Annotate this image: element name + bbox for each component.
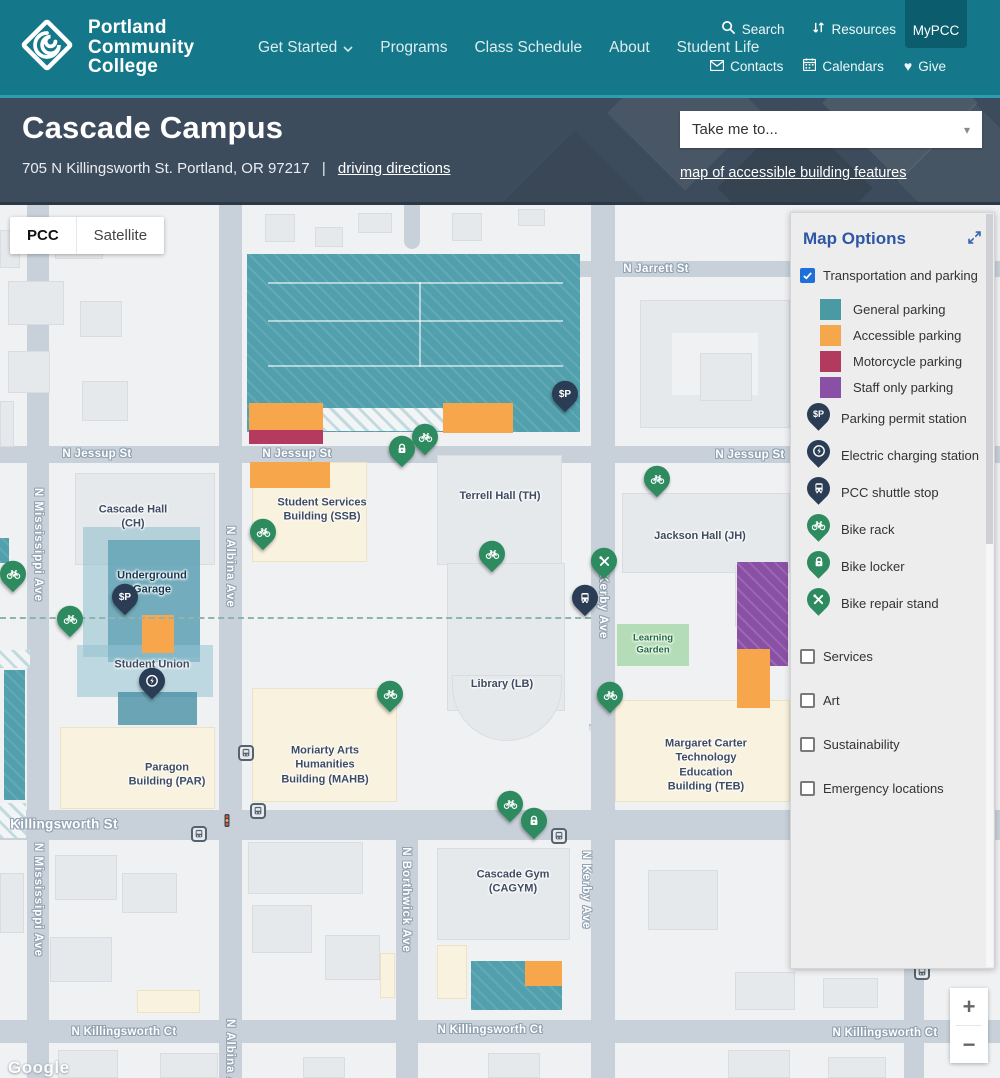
address-text: 705 N Killingsworth St. Portland, OR 972…	[22, 160, 310, 177]
pin-parking-permit-station[interactable]: $P	[550, 381, 580, 421]
utility-search[interactable]: Search	[721, 20, 785, 38]
street-stub	[404, 205, 420, 249]
checkbox-transportation-and-parking[interactable]	[800, 268, 815, 283]
utility-nav-bottom: ContactsCalendars♥Give	[710, 58, 946, 74]
building	[452, 213, 482, 241]
parking-accessible-3	[250, 462, 330, 488]
building	[728, 1050, 790, 1078]
layer-label: Art	[823, 693, 840, 708]
layer-row-sustainability: Sustainability	[800, 737, 986, 752]
utility-give[interactable]: ♥Give	[904, 58, 946, 74]
building	[8, 351, 50, 393]
building-label-cascade-gym: Cascade Gym (CAGYM)	[477, 868, 550, 897]
building	[325, 935, 380, 980]
street-n-kerby-ave	[591, 205, 615, 1078]
parking-accessible-2	[443, 403, 513, 433]
panel-header: Map Options	[791, 213, 994, 253]
campus-header: Cascade Campus 705 N Killingsworth St. P…	[0, 95, 1000, 205]
chevron-down-icon	[343, 39, 353, 57]
building-label-paragon: Paragon Building (PAR)	[129, 761, 206, 790]
checkbox-sustainability[interactable]	[800, 737, 815, 752]
parking-accessible-5	[525, 961, 562, 986]
panel-title: Map Options	[803, 229, 906, 248]
legend-row-bike-repair-stand: Bike repair stand	[805, 586, 994, 620]
utility-resources[interactable]: Resources	[812, 20, 896, 38]
legend-row-accessible-parking: Accessible parking	[820, 324, 994, 346]
building-label-teb: Margaret Carter Technology Education Bui…	[665, 736, 747, 793]
campus-address: 705 N Killingsworth St. Portland, OR 972…	[22, 160, 450, 177]
utility-calendars[interactable]: Calendars	[803, 58, 884, 74]
pin-bike-rack[interactable]	[595, 682, 625, 722]
building	[0, 401, 14, 447]
legend-pin-pcc-shuttle-stop	[805, 476, 832, 509]
nav-class-schedule[interactable]: Class Schedule	[474, 39, 582, 57]
google-attribution: Google	[8, 1058, 70, 1078]
checkbox-art[interactable]	[800, 693, 815, 708]
pcc-diamond-logo-icon	[16, 14, 78, 81]
map-type-satellite-button[interactable]: Satellite	[76, 217, 164, 254]
street-label: N Mississippi Ave	[32, 488, 44, 602]
select-value: Take me to...	[692, 121, 778, 138]
building-label-jackson-hall: Jackson Hall (JH)	[654, 529, 746, 543]
parking-accessible-6	[142, 615, 174, 653]
bus-stop-icon	[191, 826, 207, 842]
scrollbar-thumb[interactable]	[986, 214, 993, 544]
building	[518, 209, 545, 226]
legend-label: Parking permit station	[841, 411, 967, 426]
legend-row-bike-locker: Bike locker	[805, 549, 994, 583]
pin-bike-rack[interactable]	[248, 519, 278, 559]
street-label: N Jessup St	[715, 449, 784, 461]
building-label-library: Library (LB)	[471, 677, 533, 691]
legend-swatch-staff-only-parking	[820, 377, 841, 398]
building-label-mahb: Moriarty Arts Humanities Building (MAHB)	[281, 744, 368, 787]
panel-sections: Transportation and parkingGeneral parkin…	[791, 268, 994, 796]
street-label: N Albina Ave	[224, 1019, 236, 1078]
building	[252, 905, 312, 953]
lane-line	[268, 282, 563, 284]
layer-row-services: Services	[800, 649, 986, 664]
legend-label: Motorcycle parking	[853, 354, 962, 369]
zoom-out-button[interactable]: −	[950, 1026, 988, 1063]
layer-label: Transportation and parking	[823, 268, 978, 283]
building	[50, 937, 112, 982]
pin-electric-charging-station[interactable]	[137, 668, 167, 708]
legend-label: PCC shuttle stop	[841, 485, 939, 500]
nav-get-started[interactable]: Get Started	[258, 39, 353, 57]
layer-label: Emergency locations	[823, 781, 944, 796]
legend-row-motorcycle-parking: Motorcycle parking	[820, 350, 994, 372]
layer-row-art: Art	[800, 693, 986, 708]
one-way-arrow: ↑	[587, 721, 593, 733]
building	[648, 870, 718, 930]
lane-line	[268, 320, 563, 322]
pin-pcc-shuttle-stop[interactable]	[570, 585, 600, 625]
street-label: N Borthwick Ave	[400, 847, 412, 953]
legend-row-pcc-shuttle-stop: PCC shuttle stop	[805, 475, 994, 509]
legend-row-electric-charging-station: Electric charging station	[805, 438, 994, 472]
pin-bike-rack[interactable]	[375, 681, 405, 721]
zoom-control: + −	[950, 988, 988, 1063]
legend-label: Bike locker	[841, 559, 905, 574]
parking-accessible-4	[737, 649, 770, 708]
legend-pin-bike-rack	[805, 513, 832, 546]
layer-label: Sustainability	[823, 737, 900, 752]
map-type-control: PCC Satellite	[10, 217, 164, 254]
resources-icon	[812, 21, 825, 37]
street-label: N Jessup St	[262, 448, 331, 460]
pin-parking-permit-station[interactable]: $P	[110, 584, 140, 624]
site-header: Portland Community College Get StartedPr…	[0, 0, 1000, 95]
building-label-cascade-hall: Cascade Hall (CH)	[99, 503, 167, 532]
parking-area	[4, 670, 25, 800]
legend-row-parking-permit-station: $PParking permit station	[805, 401, 994, 435]
search-icon	[721, 20, 736, 38]
street-label: N Killingsworth Ct	[832, 1027, 937, 1039]
chevron-down-icon: ▾	[964, 123, 970, 137]
calendar-icon	[803, 58, 816, 74]
traffic-light-icon	[224, 814, 230, 833]
legend-row-staff-only-parking: Staff only parking	[820, 376, 994, 398]
street-label: N Mississippi Ave	[32, 843, 44, 957]
building-label-ssb: Student Services Building (SSB)	[277, 496, 366, 525]
building	[80, 301, 122, 337]
parking-area	[0, 650, 30, 668]
building-label-terrell-hall: Terrell Hall (TH)	[459, 489, 540, 503]
street-label: N Killingsworth Ct	[71, 1026, 176, 1038]
learning-garden-label: Learning Garden	[633, 633, 673, 658]
pcc-logo[interactable]: Portland Community College	[16, 14, 194, 81]
building	[82, 381, 128, 421]
street-label: N Jarrett St	[623, 263, 689, 275]
building	[735, 972, 795, 1010]
nav-programs[interactable]: Programs	[380, 39, 447, 57]
checkbox-emergency-locations[interactable]	[800, 781, 815, 796]
street-label: N Albina Ave	[224, 526, 236, 608]
building	[137, 990, 200, 1013]
building	[0, 873, 24, 933]
street-label: N Jessup St	[62, 448, 131, 460]
nav-about[interactable]: About	[609, 39, 650, 57]
legend-row-general-parking: General parking	[820, 298, 994, 320]
panel-scrollbar[interactable]	[986, 214, 993, 967]
utility-contacts[interactable]: Contacts	[710, 58, 783, 74]
building	[437, 945, 467, 999]
pin-bike-repair-stand[interactable]	[589, 548, 619, 588]
pcc-logo-text: Portland Community College	[88, 18, 194, 77]
building	[8, 281, 64, 325]
building	[358, 213, 392, 233]
building	[823, 978, 878, 1008]
layer-label: Services	[823, 649, 873, 664]
legend-pin-electric-charging-station	[805, 439, 832, 472]
main-nav: Get StartedProgramsClass ScheduleAboutSt…	[258, 0, 759, 95]
building	[122, 873, 177, 913]
building	[303, 1057, 345, 1078]
legend-swatch-general-parking	[820, 299, 841, 320]
diamond-decoration	[497, 130, 653, 205]
accessible-features-link[interactable]: map of accessible building features	[680, 165, 907, 181]
building	[315, 227, 343, 247]
pin-bike-rack[interactable]	[55, 606, 85, 646]
street-n-albina-ave	[219, 205, 242, 1078]
building	[160, 1053, 218, 1078]
layer-row-emergency-locations: Emergency locations	[800, 781, 986, 796]
legend-swatch-motorcycle-parking	[820, 351, 841, 372]
zoom-in-button[interactable]: +	[950, 988, 988, 1025]
building	[55, 855, 117, 900]
lane-line	[419, 282, 421, 367]
street-label: N Kerby Ave	[580, 851, 592, 930]
page-title: Cascade Campus	[22, 110, 283, 146]
bus-stop-icon	[551, 828, 567, 844]
pin-bike-rack[interactable]	[642, 466, 672, 506]
legend-label: Electric charging station	[841, 448, 979, 463]
lane-line	[268, 365, 563, 367]
building	[248, 842, 363, 894]
building	[828, 1057, 886, 1078]
building	[488, 1053, 540, 1078]
take-me-to-select[interactable]: Take me to... ▾	[680, 111, 982, 148]
legend-label: Bike repair stand	[841, 596, 939, 611]
bus-stop-icon	[238, 745, 254, 761]
pin-bike-locker[interactable]	[519, 808, 549, 848]
building	[380, 953, 395, 998]
parking-area	[0, 538, 9, 563]
mail-icon	[710, 59, 724, 74]
pin-bike-rack[interactable]	[477, 541, 507, 581]
pin-bike-rack[interactable]	[0, 561, 28, 601]
checkbox-services[interactable]	[800, 649, 815, 664]
expand-icon[interactable]	[967, 230, 982, 250]
building	[700, 353, 752, 401]
bus-stop-icon	[250, 803, 266, 819]
layer-row-transportation-and-parking: Transportation and parking	[800, 268, 986, 283]
legend-row-bike-rack: Bike rack	[805, 512, 994, 546]
map-options-panel: Map Options Transportation and parkingGe…	[790, 212, 995, 969]
parking-accessible-1	[249, 403, 323, 431]
legend-label: Staff only parking	[853, 380, 953, 395]
driving-directions-link[interactable]: driving directions	[338, 160, 451, 177]
legend-pin-parking-permit-station: $P	[805, 402, 832, 435]
legend-swatch-accessible-parking	[820, 325, 841, 346]
legend-label: Bike rack	[841, 522, 894, 537]
parking-motorcycle	[249, 430, 323, 444]
utility-nav-top: SearchResources	[721, 20, 896, 38]
building	[265, 214, 295, 242]
mypcc-tab[interactable]: MyPCC	[905, 0, 967, 48]
legend-label: General parking	[853, 302, 946, 317]
campus-boundary-dashed	[0, 617, 591, 619]
legend-pin-bike-locker	[805, 550, 832, 583]
heart-icon: ♥	[904, 59, 912, 74]
street-label: Killingsworth St	[10, 817, 118, 832]
legend-label: Accessible parking	[853, 328, 961, 343]
map-type-pcc-button[interactable]: PCC	[10, 217, 76, 254]
legend-pin-bike-repair-stand	[805, 587, 832, 620]
pcc-campus-map-page: Portland Community College Get StartedPr…	[0, 0, 1000, 1078]
nav-student-life[interactable]: Student Life	[677, 39, 760, 57]
pin-bike-locker[interactable]	[387, 436, 417, 476]
street-label: N Killingsworth Ct	[437, 1024, 542, 1036]
